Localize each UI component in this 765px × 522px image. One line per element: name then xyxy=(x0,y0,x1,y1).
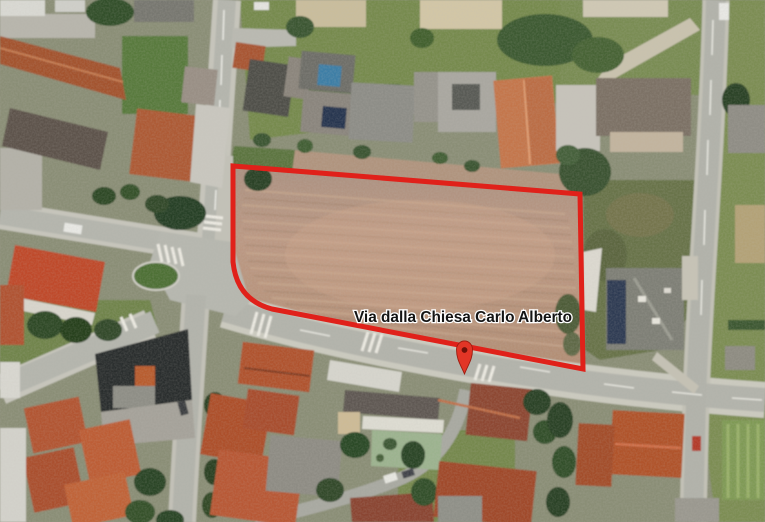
svg-text:Via dalla Chiesa Carlo Alberto: Via dalla Chiesa Carlo Alberto xyxy=(354,309,572,326)
